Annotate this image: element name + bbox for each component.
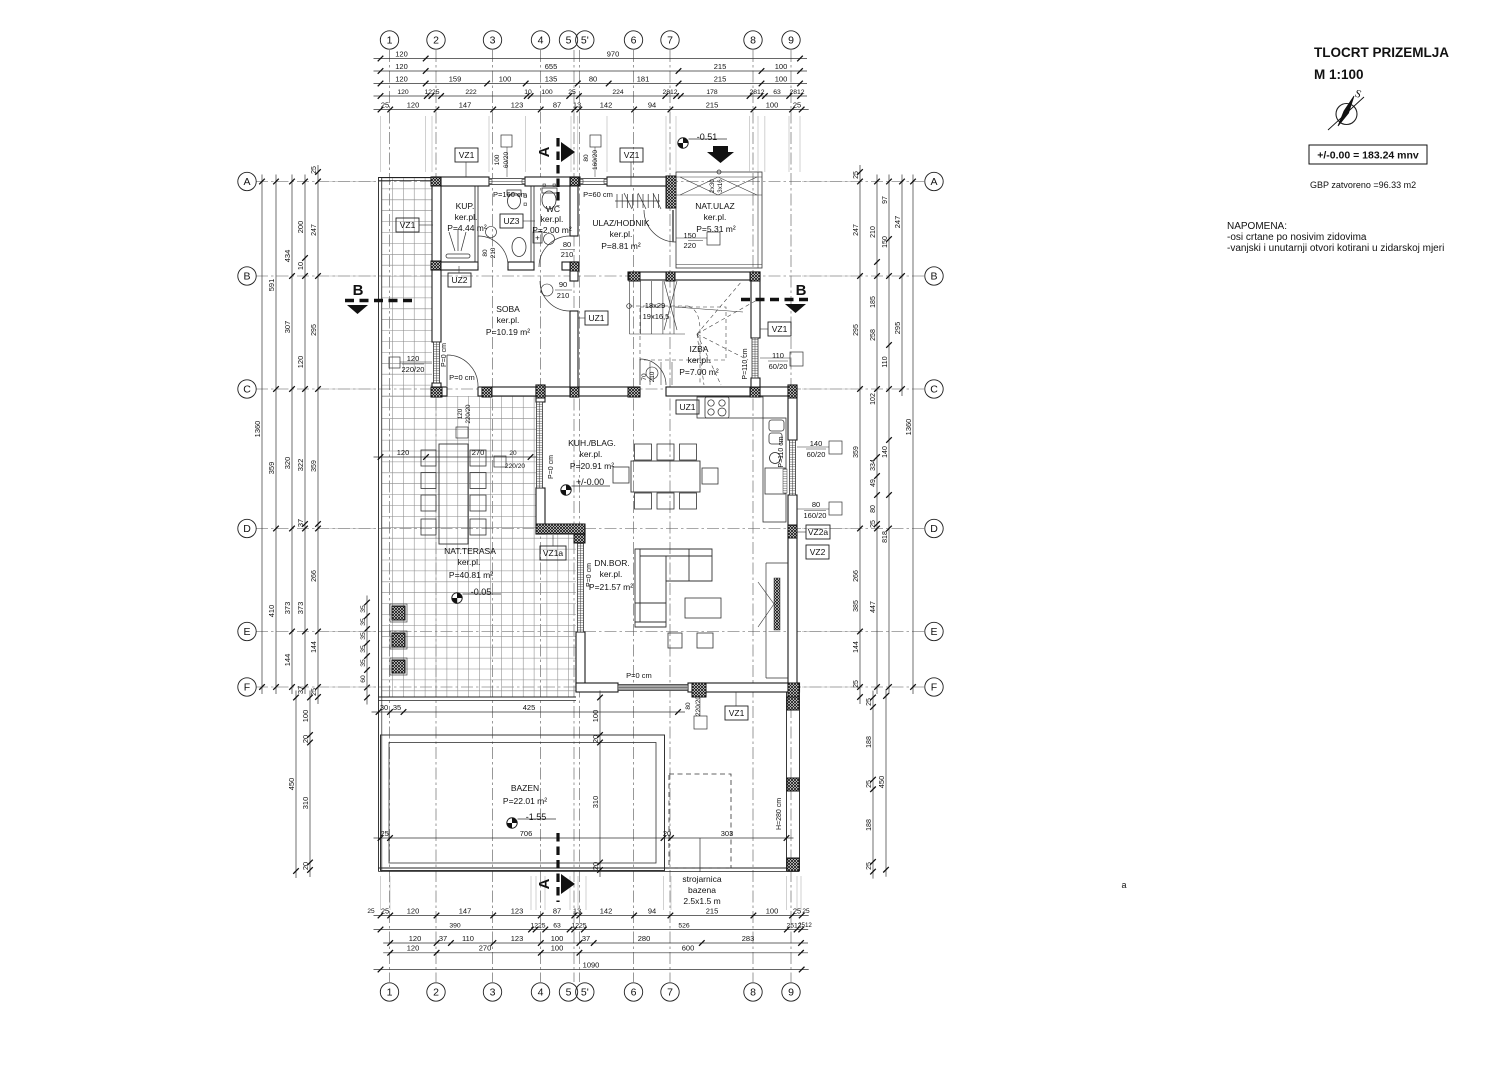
svg-text:2512: 2512 [798,922,812,929]
svg-text:100: 100 [541,89,553,96]
svg-text:20: 20 [663,829,671,838]
svg-text:120: 120 [395,62,408,71]
svg-text:25: 25 [802,908,810,915]
svg-text:P=5.31 m²: P=5.31 m² [696,224,736,234]
svg-text:9: 9 [788,987,794,999]
svg-text:144: 144 [283,654,292,667]
svg-text:359: 359 [267,462,276,475]
svg-text:210: 210 [870,226,877,238]
svg-text:140: 140 [810,439,823,448]
svg-text:37: 37 [296,686,305,694]
svg-text:P=160 cm: P=160 cm [493,190,527,199]
svg-text:591: 591 [267,279,276,292]
svg-text:94: 94 [648,100,656,109]
svg-text:706: 706 [520,829,533,838]
svg-text:100: 100 [766,906,779,915]
svg-text:1225: 1225 [530,922,545,929]
svg-text:C: C [243,384,251,396]
svg-text:1: 1 [387,987,393,999]
svg-text:450: 450 [287,778,296,791]
svg-text:10: 10 [524,89,532,96]
svg-text:160/20: 160/20 [804,511,827,520]
svg-text:P=40.81 m²: P=40.81 m² [449,570,493,580]
svg-text:P=0 cm: P=0 cm [449,373,475,382]
svg-text:295: 295 [893,322,902,335]
svg-text:7: 7 [667,987,673,999]
svg-text:320: 320 [283,457,292,470]
svg-text:20: 20 [591,735,600,743]
svg-text:220/20: 220/20 [695,696,702,716]
svg-text:4: 4 [538,35,544,47]
svg-text:ker.pl.: ker.pl. [704,212,727,222]
svg-text:5': 5' [581,35,589,47]
svg-text:37: 37 [296,519,305,527]
svg-text:3: 3 [490,987,496,999]
svg-text:E: E [930,626,937,638]
svg-text:150: 150 [882,236,889,248]
svg-text:P=10.19 m²: P=10.19 m² [486,327,530,337]
svg-text:450: 450 [877,776,886,789]
svg-text:210: 210 [649,371,656,382]
svg-text:B: B [796,282,807,299]
svg-text:NAT.TERASA: NAT.TERASA [444,546,496,556]
svg-text:600: 600 [682,944,695,953]
svg-text:25: 25 [853,171,860,179]
svg-text:P=2.00 m²: P=2.00 m² [532,225,572,235]
svg-text:20: 20 [509,450,517,457]
svg-text:-vanjski i unutarnji otvori ko: -vanjski i unutarnji otvori kotirani u z… [1227,243,1444,254]
svg-text:215: 215 [706,906,719,915]
svg-text:5: 5 [566,35,572,47]
svg-text:6: 6 [631,987,637,999]
svg-text:ULAZ/HODNIK: ULAZ/HODNIK [592,218,649,228]
svg-text:49: 49 [870,479,877,487]
svg-text:526: 526 [678,922,690,929]
svg-text:37: 37 [582,934,590,943]
svg-text:F: F [244,682,250,694]
svg-text:P=0 cm: P=0 cm [548,455,555,479]
svg-text:ker.pl.: ker.pl. [497,315,520,325]
svg-text:H=280 cm: H=280 cm [776,798,783,830]
svg-text:100: 100 [591,710,600,723]
svg-text:30: 30 [380,703,388,712]
svg-text:A: A [536,146,553,157]
svg-text:123: 123 [511,906,524,915]
svg-text:10: 10 [296,262,305,270]
svg-text:120: 120 [296,356,305,369]
svg-text:322: 322 [296,459,305,472]
svg-text:19x16,5: 19x16,5 [643,312,670,321]
svg-text:IZBA: IZBA [690,344,709,354]
svg-text:1090: 1090 [583,960,600,969]
svg-text:102: 102 [870,393,877,405]
svg-text:970: 970 [607,49,620,58]
svg-text:18x29: 18x29 [645,301,665,310]
svg-text:37: 37 [439,934,447,943]
svg-text:C: C [930,384,938,396]
svg-text:60/20: 60/20 [769,362,788,371]
svg-text:BAZEN: BAZEN [511,783,539,793]
svg-text:1225: 1225 [571,922,586,929]
svg-text:2812: 2812 [749,89,764,96]
svg-text:7: 7 [667,35,673,47]
svg-text:1225: 1225 [424,89,439,96]
svg-text:5': 5' [581,987,589,999]
svg-text:2: 2 [433,35,439,47]
svg-text:655: 655 [545,62,558,71]
svg-text:80: 80 [563,240,571,249]
svg-text:35: 35 [393,703,401,712]
svg-text:B: B [353,282,364,299]
svg-text:9: 9 [788,35,794,47]
svg-text:120: 120 [409,934,422,943]
svg-text:373: 373 [283,602,292,615]
svg-text:P=0 cm: P=0 cm [586,563,593,587]
svg-text:120: 120 [407,100,420,109]
svg-text:20: 20 [301,862,310,870]
svg-text:120: 120 [397,448,410,457]
svg-text:P=4.44 m²: P=4.44 m² [447,223,487,233]
svg-text:NAT.ULAZ: NAT.ULAZ [695,201,735,211]
svg-text:KUH./BLAG.: KUH./BLAG. [568,438,616,448]
svg-text:3: 3 [490,35,496,47]
svg-text:P=21.57 m²: P=21.57 m² [589,582,633,592]
svg-text:120: 120 [407,906,420,915]
svg-text:35: 35 [360,659,367,667]
svg-text:80: 80 [589,74,597,83]
svg-text:359: 359 [853,446,860,458]
svg-text:ker.pl.: ker.pl. [580,449,603,459]
svg-text:1360: 1360 [253,421,262,438]
svg-text:123: 123 [511,934,524,943]
svg-text:-1.55: -1.55 [526,812,547,822]
svg-text:2x30: 2x30 [709,179,716,193]
svg-text:35: 35 [360,618,367,626]
svg-text:258: 258 [870,329,877,341]
svg-text:+/-0.00 = 183.24 mnv: +/-0.00 = 183.24 mnv [1317,150,1419,162]
svg-text:110: 110 [462,934,474,943]
svg-text:bazena: bazena [688,885,716,895]
svg-text:A: A [536,878,553,889]
svg-text:D: D [930,523,938,535]
svg-text:283: 283 [742,934,755,943]
svg-text:35: 35 [360,645,367,653]
svg-text:123: 123 [511,100,524,109]
svg-text:110: 110 [772,351,784,360]
svg-text:60/20: 60/20 [503,151,510,168]
svg-text:425: 425 [523,703,536,712]
svg-text:VZ1: VZ1 [459,150,475,160]
svg-text:UZ3: UZ3 [503,216,519,226]
svg-text:280: 280 [638,934,651,943]
svg-text:B: B [243,271,250,283]
svg-text:188: 188 [866,736,873,748]
svg-text:434: 434 [283,250,292,263]
svg-text:224: 224 [612,89,624,96]
svg-text:80: 80 [685,702,692,710]
svg-text:TLOCRT PRIZEMLJA: TLOCRT PRIZEMLJA [1314,45,1449,60]
svg-text:VZ1: VZ1 [729,708,745,718]
svg-text:P=0 cm: P=0 cm [441,343,448,367]
svg-text:-0.05: -0.05 [471,587,492,597]
svg-text:UZ1: UZ1 [679,402,695,412]
svg-text:P=22.01 m²: P=22.01 m² [503,796,547,806]
svg-text:25: 25 [381,100,389,109]
svg-text:310: 310 [591,796,600,809]
svg-text:strojarnica: strojarnica [682,874,721,884]
svg-text:100: 100 [499,74,512,83]
svg-text:25: 25 [367,908,375,915]
svg-text:303: 303 [721,829,734,838]
svg-text:35: 35 [360,605,367,613]
svg-text:220/20: 220/20 [465,404,472,423]
svg-text:270: 270 [472,448,485,457]
svg-text:80: 80 [870,505,877,513]
svg-text:25: 25 [381,829,389,838]
svg-text:120: 120 [457,408,464,419]
svg-text:220/20: 220/20 [402,365,425,374]
svg-text:2812: 2812 [789,89,804,96]
svg-text:P=7.00 m²: P=7.00 m² [679,367,719,377]
svg-text:210: 210 [561,250,574,259]
svg-text:ker.pl.: ker.pl. [600,569,623,579]
svg-text:A: A [930,176,937,188]
svg-text:KUP.: KUP. [456,201,475,211]
svg-text:307: 307 [283,321,292,334]
svg-text:GBP zatvoreno =96.33 m2: GBP zatvoreno =96.33 m2 [1310,180,1416,190]
svg-text:135: 135 [545,74,558,83]
svg-text:140: 140 [882,446,889,458]
svg-text:80: 80 [583,154,590,162]
svg-text:334: 334 [870,459,877,471]
svg-text:150: 150 [683,231,696,240]
svg-text:F: F [931,682,937,694]
svg-text:NAPOMENA:: NAPOMENA: [1227,221,1287,232]
svg-text:247: 247 [893,216,902,229]
svg-text:90: 90 [559,280,567,289]
svg-text:247: 247 [853,224,860,236]
svg-text:266: 266 [853,570,860,582]
svg-text:142: 142 [600,100,613,109]
svg-text:P=8.81 m²: P=8.81 m² [601,241,641,251]
svg-text:13: 13 [573,100,581,109]
svg-text:VZ2: VZ2 [810,547,826,557]
svg-text:25: 25 [870,520,877,528]
svg-text:5: 5 [566,987,572,999]
svg-text:25: 25 [866,780,873,788]
svg-text:390: 390 [449,922,461,929]
svg-text:2: 2 [433,987,439,999]
svg-text:385: 385 [853,600,860,612]
svg-text:142: 142 [600,906,613,915]
svg-text:94: 94 [648,906,656,915]
svg-text:215: 215 [714,74,727,83]
svg-text:247: 247 [311,224,318,236]
svg-text:ker.pl.: ker.pl. [541,214,564,224]
svg-text:200: 200 [296,221,305,234]
svg-text:220: 220 [683,241,696,250]
svg-text:A: A [243,176,250,188]
svg-text:B: B [930,271,937,283]
svg-text:+/-0.00: +/-0.00 [576,477,604,487]
svg-text:SOBA: SOBA [496,304,520,314]
svg-text:63: 63 [553,922,561,929]
svg-text:VZ1: VZ1 [772,324,788,334]
svg-text:25: 25 [853,680,860,688]
svg-text:ker.pl.: ker.pl. [458,557,481,567]
svg-text:100: 100 [551,944,564,953]
svg-text:60/20: 60/20 [807,450,826,459]
svg-text:220/20: 220/20 [505,463,525,470]
svg-text:-0.51: -0.51 [697,132,718,142]
svg-text:25: 25 [793,100,801,109]
svg-text:373: 373 [296,602,305,615]
svg-text:100: 100 [766,100,779,109]
svg-text:ker.pl.: ker.pl. [610,229,633,239]
svg-text:120: 120 [407,354,420,363]
svg-text:M 1:100: M 1:100 [1314,67,1364,82]
svg-text:178: 178 [706,89,718,96]
svg-text:144: 144 [311,641,318,653]
svg-text:VZ1: VZ1 [624,150,640,160]
svg-text:UZ1: UZ1 [588,313,604,323]
svg-text:100: 100 [775,74,788,83]
svg-text:25: 25 [381,906,389,915]
svg-text:159: 159 [449,74,462,83]
svg-text:210: 210 [490,247,497,258]
svg-text:100: 100 [301,710,310,723]
svg-text:447: 447 [870,601,877,613]
svg-text:25: 25 [311,688,318,696]
svg-text:100: 100 [551,934,564,943]
svg-text:P=60 cm: P=60 cm [583,190,613,199]
svg-text:295: 295 [853,324,860,336]
svg-text:147: 147 [459,906,472,915]
svg-text:2812: 2812 [662,89,677,96]
svg-text:222: 222 [465,89,477,96]
svg-text:188: 188 [866,819,873,831]
svg-text:97: 97 [882,196,889,204]
svg-text:3x16: 3x16 [717,179,724,193]
svg-text:144: 144 [853,641,860,653]
svg-text:8: 8 [750,35,756,47]
svg-text:ker.pl.: ker.pl. [688,355,711,365]
svg-text:25: 25 [866,698,873,706]
svg-text:13: 13 [573,906,581,915]
svg-text:410: 410 [267,605,276,618]
svg-text:818: 818 [882,531,889,543]
svg-text:25: 25 [866,862,873,870]
svg-text:80: 80 [482,249,489,257]
svg-text:25: 25 [311,166,318,174]
svg-text:270: 270 [479,944,492,953]
svg-text:295: 295 [311,324,318,336]
svg-text:110: 110 [882,356,889,367]
svg-text:4: 4 [538,987,544,999]
svg-text:P=20.91 m²: P=20.91 m² [570,461,614,471]
svg-text:6: 6 [631,35,637,47]
svg-text:D: D [243,523,251,535]
svg-text:-osi crtane po nosivim zidovim: -osi crtane po nosivim zidovima [1227,232,1367,243]
svg-text:120: 120 [407,944,420,953]
svg-text:87: 87 [553,100,561,109]
svg-text:20: 20 [301,735,310,743]
svg-text:210: 210 [557,291,570,300]
svg-text:185: 185 [870,296,877,308]
svg-text:359: 359 [311,460,318,472]
svg-text:VZ2a: VZ2a [808,527,829,537]
svg-text:P=110 cm: P=110 cm [778,436,785,467]
svg-text:63: 63 [773,89,781,96]
svg-text:215: 215 [706,100,719,109]
svg-text:80: 80 [812,500,820,509]
svg-text:25: 25 [568,89,576,96]
svg-text:VZ1a: VZ1a [543,548,564,558]
svg-text:70: 70 [641,373,648,381]
svg-text:8: 8 [750,987,756,999]
svg-text:60: 60 [360,675,367,683]
svg-text:DN.BOR.: DN.BOR. [594,558,629,568]
svg-text:E: E [243,626,250,638]
svg-text:87: 87 [553,906,561,915]
svg-text:UZ2: UZ2 [451,275,467,285]
svg-text:a: a [1121,880,1126,890]
svg-text:VZ1: VZ1 [400,220,416,230]
svg-text:35: 35 [360,632,367,640]
svg-text:160/20: 160/20 [592,150,599,170]
svg-text:147: 147 [459,100,472,109]
svg-text:215: 215 [714,62,727,71]
svg-text:120: 120 [395,49,408,58]
svg-text:100: 100 [775,62,788,71]
svg-text:1360: 1360 [904,419,913,436]
svg-text:266: 266 [311,570,318,582]
svg-text:120: 120 [395,74,408,83]
svg-text:1: 1 [387,35,393,47]
svg-text:P=0 cm: P=0 cm [626,671,652,680]
svg-text:2.5x1.5 m: 2.5x1.5 m [683,896,720,906]
svg-text:310: 310 [301,797,310,810]
svg-text:120: 120 [397,89,409,96]
svg-text:20: 20 [591,862,600,870]
svg-text:P=110 cm: P=110 cm [742,348,749,379]
svg-text:ker.pl.: ker.pl. [455,212,478,222]
svg-text:100: 100 [494,154,501,165]
svg-text:181: 181 [637,74,650,83]
